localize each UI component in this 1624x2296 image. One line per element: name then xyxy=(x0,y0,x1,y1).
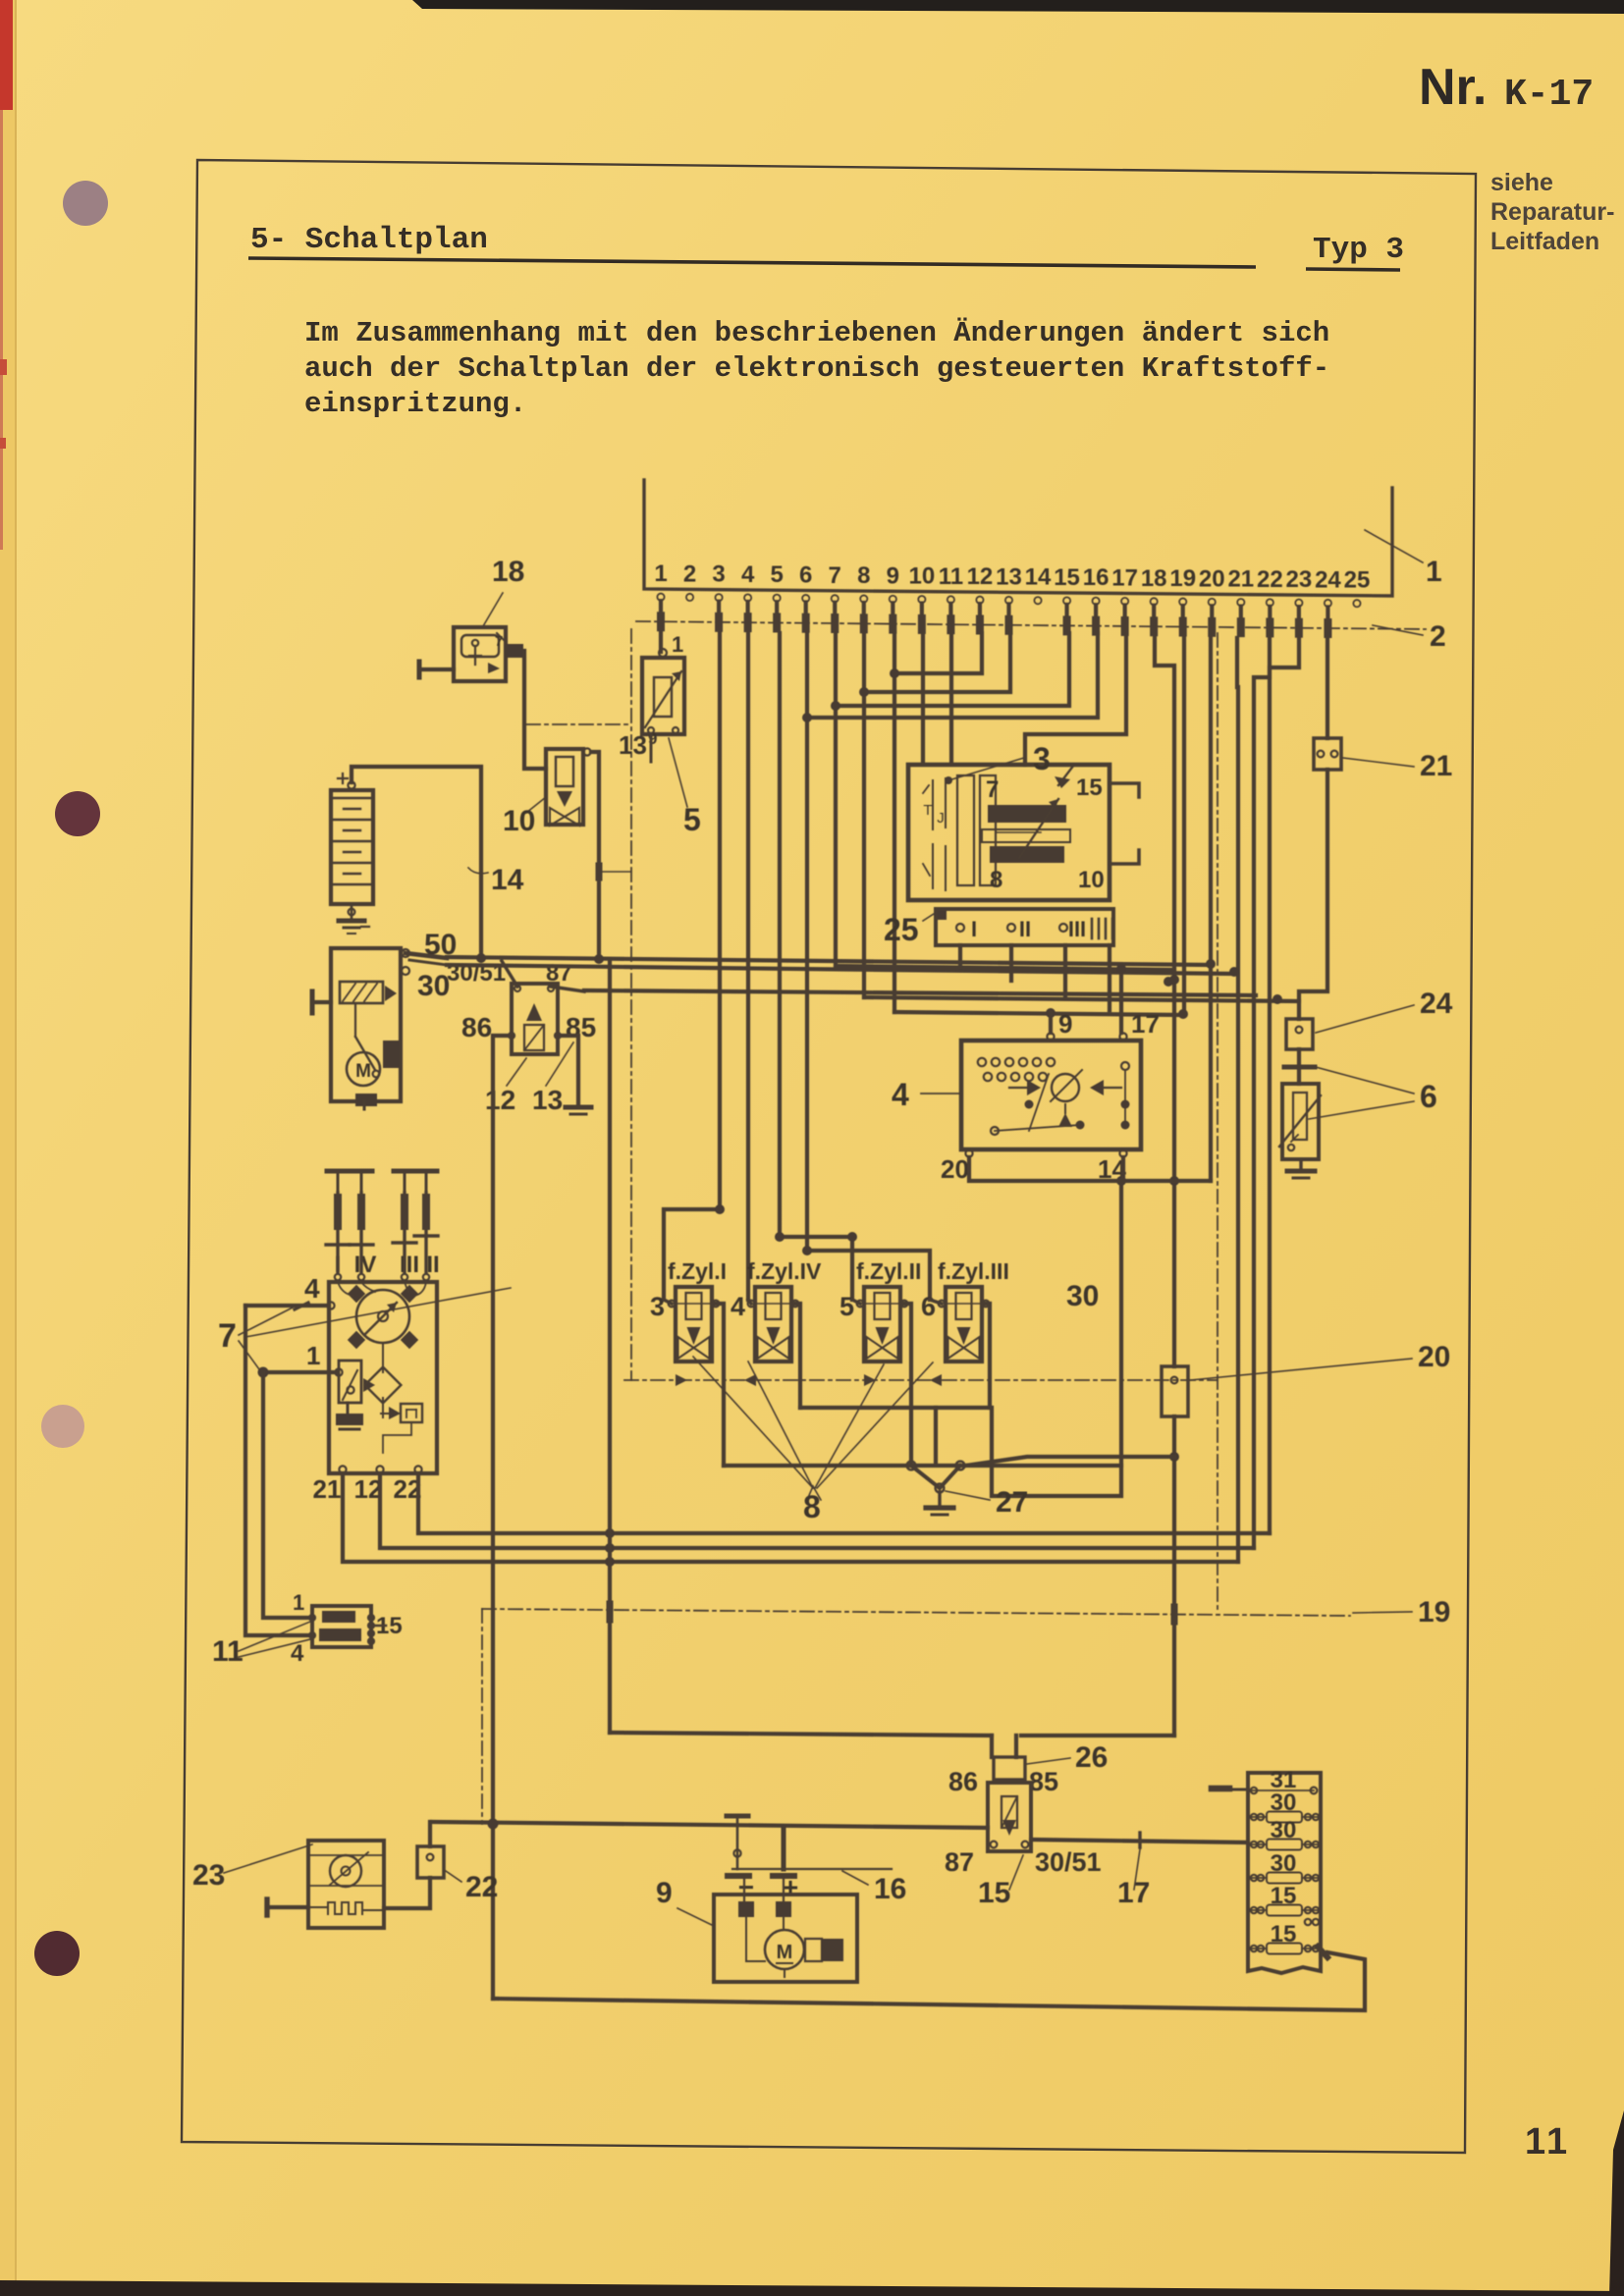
svg-text:3: 3 xyxy=(712,561,725,588)
svg-text:1: 1 xyxy=(306,1341,320,1370)
svg-text:16: 16 xyxy=(1083,564,1110,591)
svg-text:5: 5 xyxy=(770,561,783,588)
svg-text:III: III xyxy=(400,1252,419,1278)
svg-text:9: 9 xyxy=(648,729,657,748)
svg-text:19: 19 xyxy=(1418,1596,1450,1629)
svg-text:3: 3 xyxy=(650,1292,665,1321)
svg-text:9: 9 xyxy=(887,562,899,589)
svg-text:5: 5 xyxy=(683,802,701,837)
svg-text:11: 11 xyxy=(939,563,963,590)
svg-text:21: 21 xyxy=(1420,750,1452,782)
svg-text:11: 11 xyxy=(1525,2121,1570,2163)
svg-text:I: I xyxy=(971,917,977,941)
svg-text:1: 1 xyxy=(1426,556,1442,588)
svg-text:15: 15 xyxy=(978,1877,1010,1909)
svg-text:Reparatur-: Reparatur- xyxy=(1490,198,1614,226)
svg-text:10: 10 xyxy=(909,563,936,590)
svg-text:86: 86 xyxy=(948,1767,978,1796)
svg-text:16: 16 xyxy=(874,1873,906,1905)
svg-text:13: 13 xyxy=(532,1085,563,1115)
svg-text:30: 30 xyxy=(1271,1789,1297,1816)
svg-text:18: 18 xyxy=(1141,565,1167,592)
svg-text:siehe: siehe xyxy=(1490,169,1553,196)
svg-text:87: 87 xyxy=(945,1847,974,1877)
svg-text:8: 8 xyxy=(990,867,1002,893)
svg-text:9: 9 xyxy=(656,1877,673,1909)
svg-text:86: 86 xyxy=(461,1012,492,1042)
svg-text:Im Zusammenhang mit den beschr: Im Zusammenhang mit den beschriebenen Än… xyxy=(304,316,1329,349)
svg-text:25: 25 xyxy=(884,912,919,947)
svg-text:20: 20 xyxy=(1199,565,1225,592)
svg-text:9: 9 xyxy=(1058,1009,1072,1039)
svg-text:4: 4 xyxy=(731,1292,745,1321)
svg-text:30: 30 xyxy=(1271,1850,1297,1877)
svg-text:f.Zyl.II: f.Zyl.II xyxy=(856,1258,921,1284)
svg-text:4: 4 xyxy=(304,1273,320,1304)
svg-text:21: 21 xyxy=(313,1474,342,1504)
svg-text:30/51: 30/51 xyxy=(1035,1847,1102,1877)
svg-text:6: 6 xyxy=(799,562,812,589)
svg-text:85: 85 xyxy=(566,1012,596,1042)
svg-text:−: − xyxy=(738,1872,754,1902)
svg-text:Nr.: Nr. xyxy=(1419,59,1487,116)
svg-text:IV: IV xyxy=(354,1252,377,1278)
svg-text:3: 3 xyxy=(1033,741,1051,776)
svg-text:8: 8 xyxy=(857,562,870,589)
svg-text:7: 7 xyxy=(986,776,999,803)
svg-text:20: 20 xyxy=(941,1154,969,1184)
svg-text:II: II xyxy=(1019,917,1031,941)
svg-text:22: 22 xyxy=(465,1871,498,1903)
svg-text:19: 19 xyxy=(1169,565,1196,592)
svg-text:15: 15 xyxy=(1271,1921,1297,1948)
svg-text:7: 7 xyxy=(495,633,503,650)
svg-text:auch der Schaltplan der elektr: auch der Schaltplan der elektronisch ges… xyxy=(304,352,1329,385)
svg-text:III: III xyxy=(1068,917,1086,941)
svg-text:K-17: K-17 xyxy=(1504,74,1594,116)
svg-text:15: 15 xyxy=(1271,1883,1297,1909)
svg-text:87: 87 xyxy=(546,960,572,987)
svg-text:24: 24 xyxy=(1315,566,1341,593)
svg-text:15: 15 xyxy=(1054,564,1080,591)
svg-text:20: 20 xyxy=(1418,1341,1450,1373)
svg-text:10: 10 xyxy=(1078,867,1105,893)
svg-text:f.Zyl.IV: f.Zyl.IV xyxy=(747,1258,822,1284)
svg-text:1: 1 xyxy=(654,561,667,587)
svg-text:21: 21 xyxy=(1227,566,1254,593)
svg-text:15: 15 xyxy=(1076,774,1103,801)
svg-text:24: 24 xyxy=(1420,988,1453,1020)
svg-text:T: T xyxy=(923,802,932,819)
svg-text:7: 7 xyxy=(218,1317,237,1355)
svg-text:f.Zyl.I: f.Zyl.I xyxy=(668,1258,727,1284)
svg-text:30: 30 xyxy=(1271,1817,1297,1843)
svg-text:4: 4 xyxy=(741,561,755,588)
svg-text:8: 8 xyxy=(803,1489,821,1524)
svg-text:M: M xyxy=(355,1061,371,1082)
svg-text:7: 7 xyxy=(829,562,841,589)
svg-text:13: 13 xyxy=(996,563,1022,590)
svg-text:4: 4 xyxy=(892,1077,909,1112)
svg-text:17: 17 xyxy=(1131,1009,1160,1039)
svg-text:Leitfaden: Leitfaden xyxy=(1490,228,1599,255)
svg-text:5- Schaltplan: 5- Schaltplan xyxy=(250,223,488,257)
svg-text:12: 12 xyxy=(967,563,994,590)
svg-text:85: 85 xyxy=(1029,1767,1058,1796)
svg-text:12: 12 xyxy=(485,1085,515,1115)
svg-text:25: 25 xyxy=(1344,567,1371,594)
svg-text:13: 13 xyxy=(619,730,647,760)
svg-text:17: 17 xyxy=(1111,565,1138,592)
svg-text:27: 27 xyxy=(996,1486,1028,1519)
svg-text:f.Zyl.III: f.Zyl.III xyxy=(938,1258,1009,1284)
svg-text:5: 5 xyxy=(839,1292,854,1321)
svg-text:M: M xyxy=(777,1942,793,1963)
svg-text:+: + xyxy=(783,1872,798,1902)
svg-text:14: 14 xyxy=(491,864,524,896)
svg-text:10: 10 xyxy=(503,805,535,837)
svg-text:1: 1 xyxy=(293,1590,304,1615)
svg-text:II: II xyxy=(426,1252,439,1278)
svg-text:1: 1 xyxy=(672,632,683,657)
svg-text:14: 14 xyxy=(1025,564,1052,591)
svg-text:30: 30 xyxy=(1066,1280,1099,1312)
svg-text:22: 22 xyxy=(1257,566,1283,593)
svg-text:2: 2 xyxy=(1430,620,1446,653)
svg-text:2: 2 xyxy=(683,561,696,587)
svg-text:23: 23 xyxy=(1286,566,1313,593)
svg-text:J: J xyxy=(937,810,945,827)
svg-text:einspritzung.: einspritzung. xyxy=(304,388,526,420)
svg-text:18: 18 xyxy=(492,556,524,588)
svg-text:6: 6 xyxy=(921,1292,936,1321)
svg-text:6: 6 xyxy=(1420,1079,1437,1114)
svg-text:Typ 3: Typ 3 xyxy=(1313,233,1404,267)
svg-text:30: 30 xyxy=(417,970,450,1002)
svg-text:17: 17 xyxy=(1117,1877,1150,1909)
svg-text:26: 26 xyxy=(1075,1741,1108,1774)
svg-text:23: 23 xyxy=(192,1859,225,1892)
